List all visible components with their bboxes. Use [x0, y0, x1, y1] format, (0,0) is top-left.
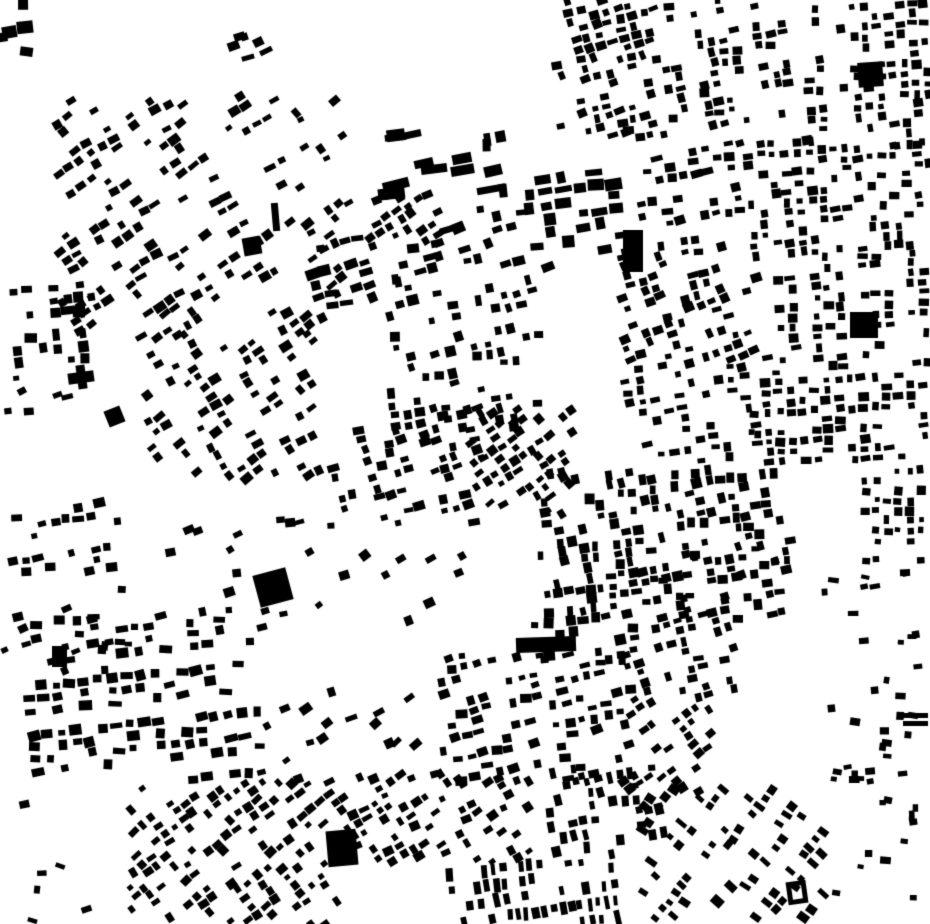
- figure-ground-map: [0, 0, 930, 924]
- building-footprint-canvas: [0, 0, 930, 924]
